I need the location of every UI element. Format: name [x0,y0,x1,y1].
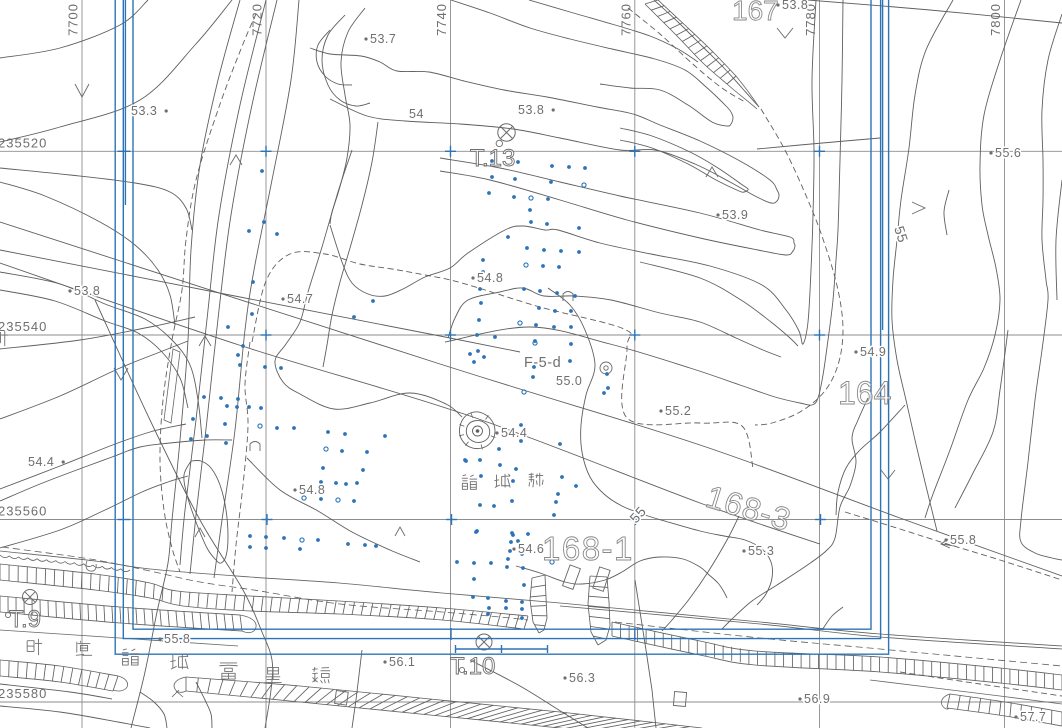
svg-text:54.4: 54.4 [501,426,527,440]
svg-text:56.3: 56.3 [569,671,595,685]
svg-text:54.4: 54.4 [28,455,54,469]
svg-text:54: 54 [409,107,424,121]
svg-text:7800: 7800 [988,3,1003,36]
svg-text:56.9: 56.9 [804,692,830,706]
svg-text:53.8: 53.8 [518,103,544,117]
svg-text:54.6: 54.6 [518,542,544,556]
svg-text:55.8: 55.8 [164,632,190,646]
svg-text:55.2: 55.2 [665,404,691,418]
svg-text:53.8: 53.8 [74,284,100,298]
svg-text:T.13: T.13 [470,145,515,172]
svg-text:T.9: T.9 [9,606,41,633]
svg-text:7740: 7740 [434,3,449,36]
svg-text:54.8: 54.8 [299,483,325,497]
svg-text:54.9: 54.9 [860,345,886,359]
svg-text:7760: 7760 [618,3,633,36]
svg-text:235540: 235540 [0,319,47,334]
svg-text:55.6: 55.6 [995,146,1021,160]
svg-text:56.1: 56.1 [389,655,415,669]
svg-text:55.8: 55.8 [950,533,976,547]
svg-text:F-5-d: F-5-d [524,355,561,371]
svg-text:54.7: 54.7 [287,292,313,306]
svg-text:57.7: 57.7 [1020,710,1046,724]
svg-text:55.3: 55.3 [748,544,774,558]
svg-text:168-1: 168-1 [542,530,634,567]
svg-text:167: 167 [732,0,779,26]
svg-text:55.0: 55.0 [556,374,582,388]
svg-text:7700: 7700 [66,3,81,36]
svg-text:7720: 7720 [250,3,265,36]
svg-text:53.7: 53.7 [370,32,396,46]
svg-text:235520: 235520 [0,135,47,150]
svg-text:53.9: 53.9 [722,208,748,222]
svg-text:54.8: 54.8 [477,271,503,285]
svg-text:T.10: T.10 [450,653,495,680]
svg-text:235560: 235560 [0,504,47,519]
svg-text:53.8: 53.8 [782,0,808,12]
svg-text:164: 164 [838,375,891,411]
svg-text:53.3: 53.3 [131,104,157,118]
